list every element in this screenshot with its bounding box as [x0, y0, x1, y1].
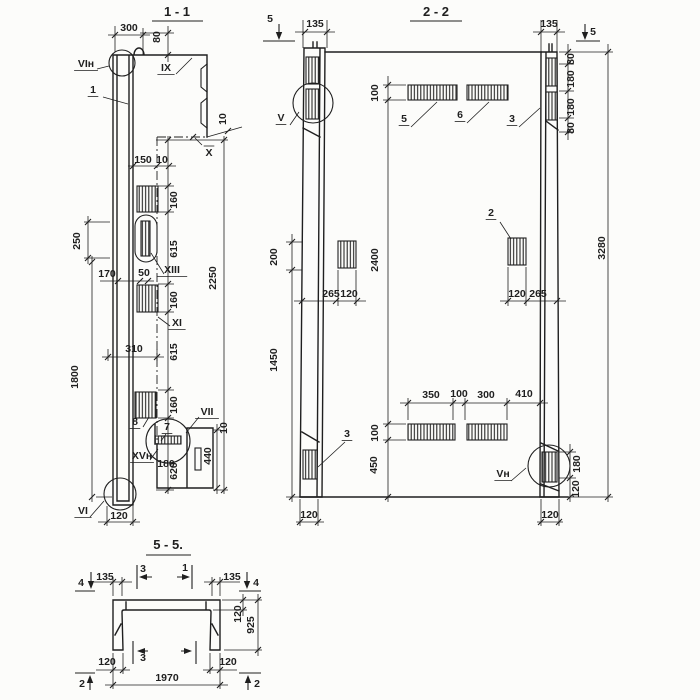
channel-outline: [113, 600, 220, 650]
cut-mark-1-top: 1: [182, 562, 188, 574]
dim-170: 170: [98, 268, 116, 280]
dim-410: 410: [515, 388, 533, 400]
dim-120-bottom-right: 120: [541, 509, 559, 521]
blueprint-sheet: 1 - 1 30080VIн1IX10X15010160615225025017…: [0, 0, 700, 700]
dim-120-mid-left: 120: [340, 288, 358, 300]
dim-50: 50: [138, 267, 150, 279]
cut-mark-4-left: 4: [78, 577, 84, 589]
extension-lines: [113, 577, 262, 689]
rebar-bar-5: [408, 85, 457, 100]
dimension-lines: [94, 582, 258, 685]
dim-3280: 3280: [596, 236, 608, 260]
dim-80-a: 80: [565, 53, 577, 65]
web-hidden-edge: [157, 137, 205, 450]
dim-1800: 1800: [69, 365, 81, 389]
dim-135-left: 135: [306, 18, 324, 30]
rebar-block: [306, 89, 319, 119]
rebar-bar: [141, 221, 150, 256]
dim-120-right: 120: [570, 480, 582, 498]
dim-250: 250: [71, 232, 83, 250]
dim-200: 200: [268, 248, 280, 266]
dim-300: 300: [477, 389, 495, 401]
dim-2250: 2250: [207, 266, 219, 290]
rebar-block: [137, 186, 158, 212]
rebar-block: [546, 92, 557, 120]
rebar-block: [338, 241, 356, 268]
dim-450: 450: [368, 456, 380, 474]
rebar-bar: [408, 424, 455, 440]
cut-mark-3-bottom: 3: [140, 652, 146, 664]
section-2-2: 2 - 2 513513558018018080V10056320024: [263, 4, 613, 526]
section-1-1-title: 1 - 1: [164, 4, 190, 19]
dim-80: 80: [151, 31, 163, 43]
cut-mark-3-top: 3: [140, 563, 146, 575]
dim-615-b: 615: [168, 343, 180, 361]
item-callout-7: 7: [164, 421, 170, 433]
drawing-canvas: 1 - 1 30080VIн1IX10X15010160615225025017…: [0, 0, 700, 700]
dim-100-mid: 100: [450, 388, 468, 400]
cut-mark-5-left: 5: [267, 13, 273, 25]
item-callout-6: 6: [457, 109, 463, 121]
dimension-ticks: [110, 579, 261, 688]
section-2-2-title: 2 - 2: [423, 4, 449, 19]
section-5-5-title: 5 - 5.: [153, 537, 183, 552]
cut-mark-4-right: 4: [253, 577, 259, 589]
dim-160-a: 160: [168, 191, 180, 209]
view-label-xv-n: XVн: [132, 450, 152, 462]
view-label-vi-n-top: VIн: [78, 58, 94, 70]
dim-100-bottom: 100: [369, 424, 381, 442]
view-label-vii: VII: [201, 406, 214, 418]
view-label-xiii: XIII: [164, 264, 180, 276]
dim-615-a: 615: [168, 240, 180, 258]
dim-10-step: 10: [218, 422, 230, 434]
dim-100-top: 100: [369, 84, 381, 102]
dim-135-left: 135: [96, 571, 114, 583]
view-label-xi: XI: [172, 317, 182, 329]
section-5-5-labels: 41353113541209251203120197022: [78, 562, 260, 690]
dim-925: 925: [245, 616, 257, 634]
dim-10-web: 10: [156, 154, 168, 166]
dim-120-mid-right: 120: [508, 288, 526, 300]
dim-1450: 1450: [268, 348, 280, 372]
cut-mark-2-right: 2: [254, 678, 260, 690]
dim-1970: 1970: [155, 672, 179, 684]
dim-310: 310: [125, 343, 143, 355]
view-label-vi-bottom: VI: [78, 505, 88, 517]
dim-120-bottom: 120: [110, 510, 128, 522]
dim-440: 440: [202, 447, 214, 465]
section-1-1-labels: 30080VIн1IX10X15010160615225025017050XII…: [69, 22, 230, 522]
dim-2400: 2400: [369, 248, 381, 272]
rebar-block: [306, 57, 319, 84]
section-1-1: 1 - 1 30080VIн1IX10X15010160615225025017…: [69, 4, 242, 526]
dim-80-b: 80: [565, 122, 577, 134]
rebar-bar-6: [467, 85, 508, 100]
item-callout-5: 5: [401, 113, 407, 125]
rebar-block: [546, 58, 557, 86]
rebar-block-2: [508, 238, 526, 265]
item-callout-8: 8: [132, 416, 138, 428]
rebar-block: [135, 392, 156, 418]
item-callout-1: 1: [90, 84, 96, 96]
dim-135-right: 135: [223, 571, 241, 583]
cut-mark-2-left: 2: [79, 678, 85, 690]
item-callout-3-top: 3: [509, 113, 515, 125]
dim-160-b: 160: [168, 291, 180, 309]
item-callout-2: 2: [488, 207, 494, 219]
dim-300: 300: [120, 22, 138, 34]
rebar-block: [542, 452, 557, 482]
dim-620: 620: [168, 462, 180, 480]
rebar-block: [137, 285, 158, 312]
dim-180-b: 180: [565, 98, 577, 116]
dim-120-bottom-left: 120: [98, 656, 116, 668]
section-5-5: 5 - 5. 41353113541209251203120197022: [75, 537, 262, 690]
dim-160-c: 160: [168, 396, 180, 414]
dim-350: 350: [422, 389, 440, 401]
cut-mark-5-right: 5: [590, 26, 596, 38]
keyway-teeth: [201, 64, 207, 128]
dim-120-bottom-right: 120: [219, 656, 237, 668]
dim-150: 150: [134, 154, 152, 166]
dim-265-right: 265: [529, 288, 547, 300]
rebar-block: [303, 450, 317, 479]
rebar-bar: [467, 424, 507, 440]
dim-10-offset-top: 10: [217, 113, 229, 125]
dim-120-thickness: 120: [232, 605, 244, 623]
item-callout-3-bottom: 3: [344, 428, 350, 440]
dim-180-right: 180: [571, 455, 583, 473]
step-groove: [195, 448, 201, 470]
dim-265-left: 265: [322, 288, 340, 300]
dim-120-bottom-left: 120: [300, 509, 318, 521]
view-label-v-n: Vн: [496, 468, 509, 480]
dim-180-a: 180: [565, 70, 577, 88]
view-label-v: V: [277, 112, 284, 124]
view-label-x: X: [205, 147, 212, 159]
dim-135-right: 135: [540, 18, 558, 30]
view-label-ix: IX: [161, 62, 171, 74]
